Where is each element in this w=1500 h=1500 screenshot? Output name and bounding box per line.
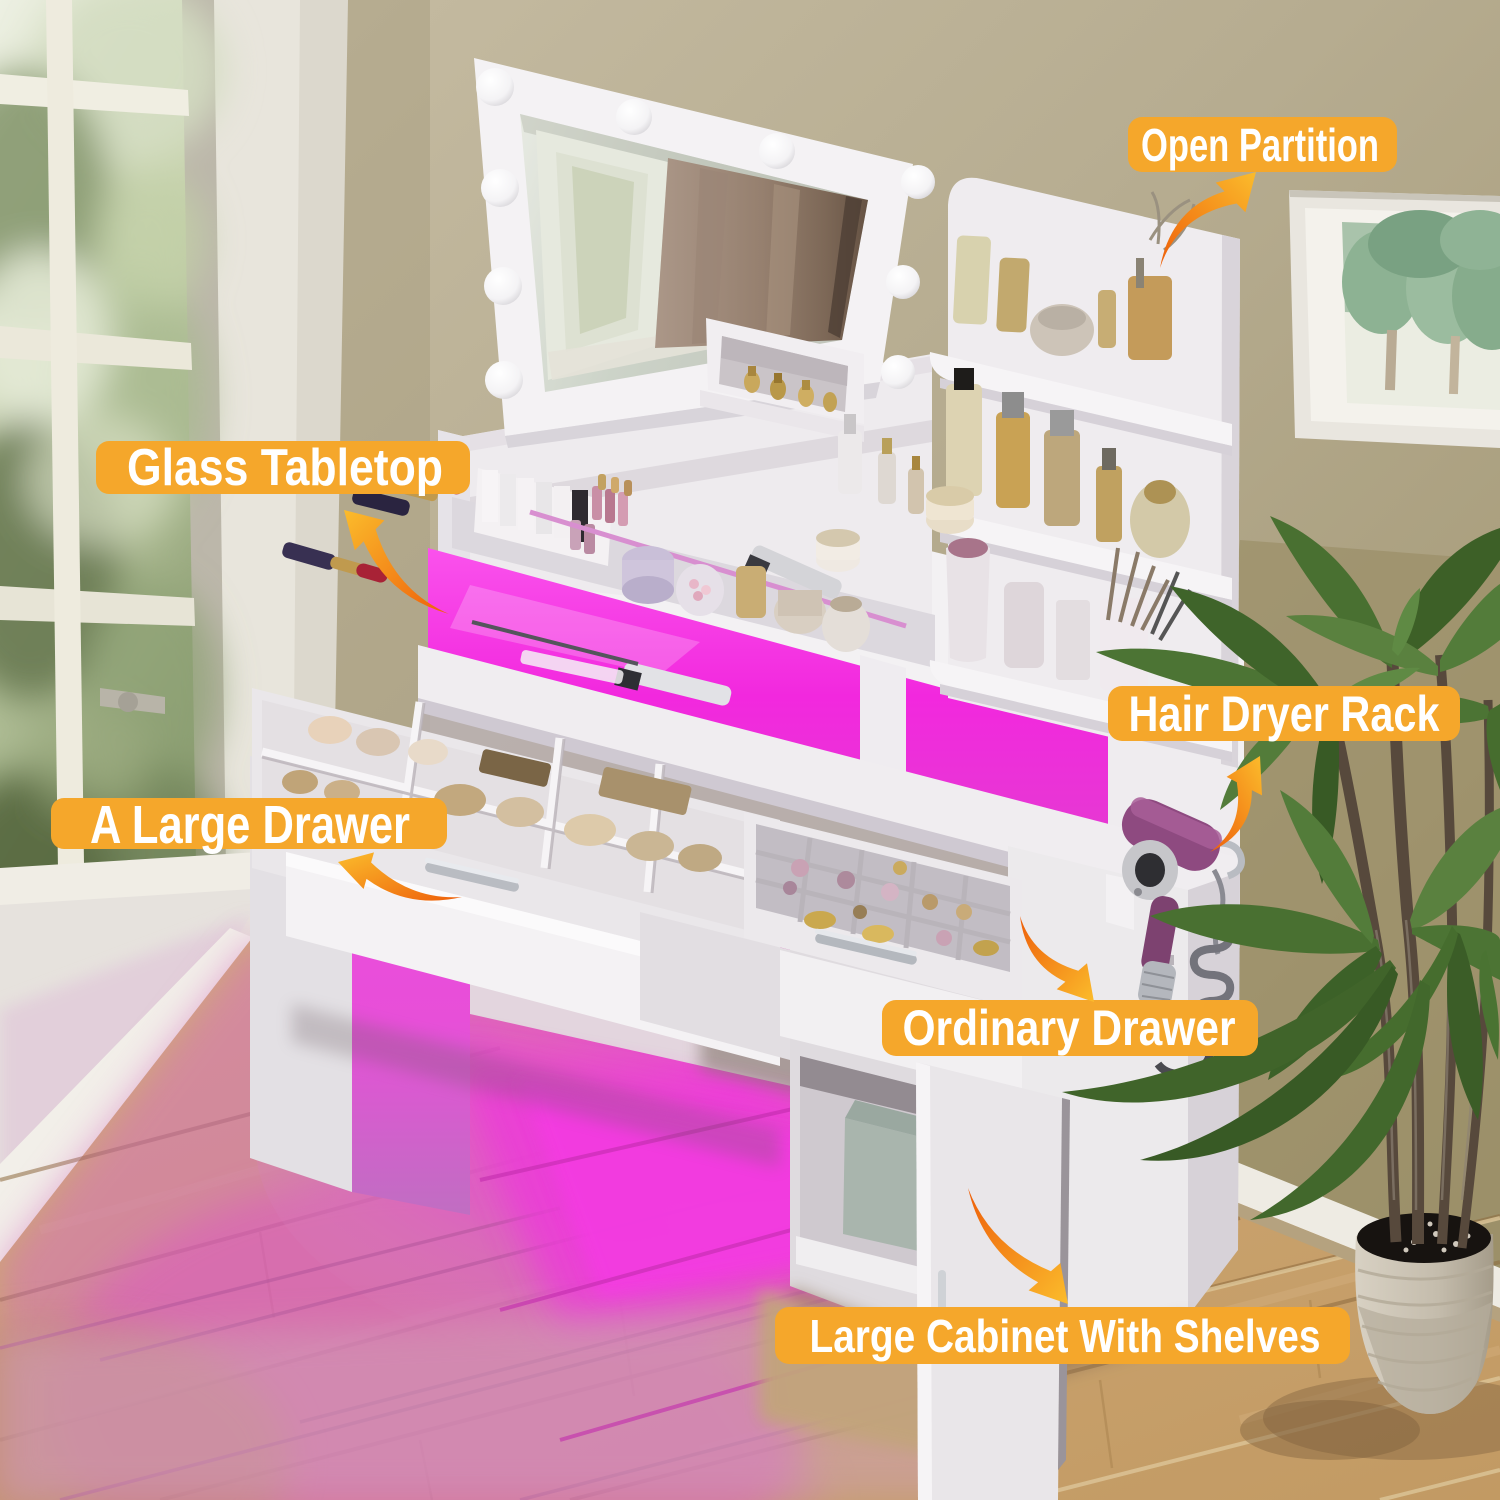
svg-text:Hair Dryer Rack: Hair Dryer Rack xyxy=(1129,686,1440,742)
svg-text:Open Partition: Open Partition xyxy=(1141,119,1379,171)
svg-text:A Large Drawer: A Large Drawer xyxy=(90,795,410,855)
svg-text:Glass Tabletop: Glass Tabletop xyxy=(127,439,443,497)
svg-text:Large Cabinet With Shelves: Large Cabinet With Shelves xyxy=(810,1310,1321,1362)
svg-text:Ordinary Drawer: Ordinary Drawer xyxy=(903,1000,1236,1056)
